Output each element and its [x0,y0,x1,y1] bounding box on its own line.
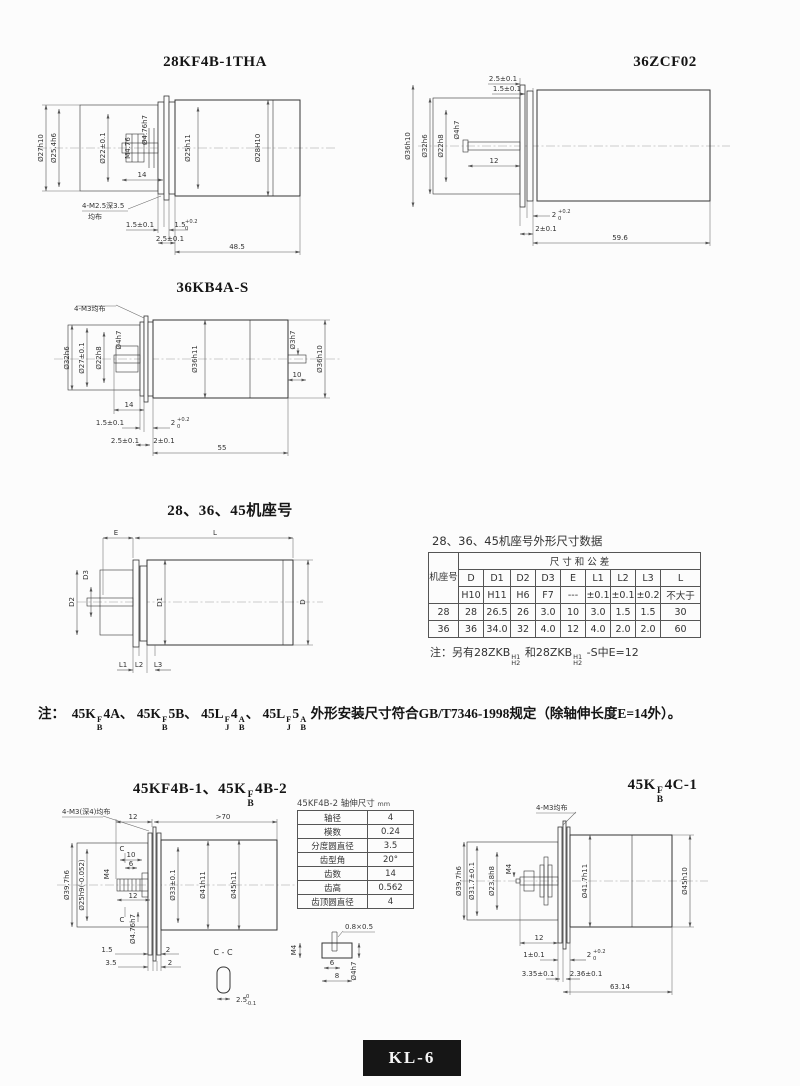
title-text: 45K [628,777,656,793]
gear-cell: 齿数 [298,867,368,881]
screw-note: 4-M2.5深3.5 [82,201,124,210]
note-text: 、 [246,706,260,721]
gear-cell: 齿高 [298,881,368,895]
cell: 26.5 [484,604,511,621]
gear-cell: 齿型角 [298,853,368,867]
gear-cell: 4 [368,811,414,825]
drawing-45KF4B: 45KF4B-1、45KFB4B-2 [45,775,445,1015]
tol-header: --- [561,587,586,604]
dim-flange-label: Ø32h6 [63,346,71,370]
page-number: KL-6 [389,1048,436,1068]
detail-dia-label: Ø4h7 [350,962,358,981]
part-outline [87,560,293,647]
section-cc-label: C - C [213,948,233,957]
col-header: L [661,570,701,587]
dimension-labels: E L D3 D2 D1 D L1 L2 L3 [68,529,307,669]
dim-pcd-label: Ø27±0.1 [78,342,86,373]
col-header: D1 [484,570,511,587]
dim-b1-sub: 0 [558,216,561,222]
cell: 36 [429,621,459,638]
dimension-labels: 4-M3均布 Ø32h6 Ø27±0.1 Ø22h8 Ø4h7 Ø36h11 Ø… [63,304,324,452]
screw-note: 4-M3均布 [536,803,567,812]
dim-t2-label: 1.5 [174,221,185,229]
cell: 4.0 [586,621,611,638]
cell: 1.5 [611,604,636,621]
title-text: 4C-1 [665,777,698,793]
gear-cell: 14 [368,867,414,881]
cell: 60 [661,621,701,638]
cell: 36 [459,621,484,638]
gear-cell: 齿顶圆直径 [298,895,368,909]
cell: 30 [661,604,701,621]
dim-t1-label: 2.5±0.1 [489,76,517,83]
col-header: D3 [536,570,561,587]
detail-8-label: 8 [335,972,339,980]
drawing-28KF4B-1THA-figure: Ø27h10 Ø25.4h6 Ø22±0.1 M4.76 Ø4.76h7 Ø25… [30,80,400,260]
note-stack: FJ [225,715,230,731]
dimension-lines [77,538,313,673]
dim-gear-label: Ø36h11 [191,345,199,373]
dim-E-label: E [114,529,118,537]
dim-pilot-label: Ø23.8h8 [488,866,496,896]
dim-b1-sup: +0.2 [558,209,571,215]
section-mark-c1: C [120,845,125,853]
page-number-badge: KL-6 [363,1040,461,1076]
cell: 3.0 [586,604,611,621]
note-stack: AB [300,715,306,731]
cell: 34.0 [484,621,511,638]
dim-pilot-label: Ø22h8 [95,346,103,369]
part-outline [77,827,277,961]
dim-g2-label: Ø41h11 [199,871,207,899]
part-outline [467,821,672,949]
dim-D3-label: D3 [82,570,90,580]
note-text: 45K [137,706,161,721]
stk-bot: B [97,723,103,731]
dim-gear-label: Ø25h11 [184,134,192,162]
dim-t2-sub: 0 [185,226,188,232]
frame-size-table: 28、36、45机座号外形尺寸数据 机座号 尺 寸 和 公 差 D D1 D2 … [428,533,720,666]
dim-m4-label: M4 [103,868,111,879]
drawing-36ZCF02-figure: 2.5±0.1 1.5±0.1 Ø36h10 Ø32h6 Ø22h8 Ø4h7 … [400,76,790,260]
col-header: L3 [636,570,661,587]
dim-14-label: 14 [125,401,134,409]
dimension-lines [413,78,710,246]
dim-body-label: Ø45h11 [230,871,238,899]
title-text: 45KF4B-1、45K [133,781,247,797]
cell: 1.5 [636,604,661,621]
dim-D2-label: D2 [68,597,76,607]
cell: 10 [561,604,586,621]
dim-b1-label: 2 [552,211,556,219]
tol-header: ±0.2 [636,587,661,604]
drawing-45KB4C-1-figure: 4-M3均布 Ø39.7h6 Ø31.7±0.1 Ø23.8h8 M4 Ø41.… [450,799,795,1015]
note-text: 5B、 [169,706,198,721]
dim-body-label: Ø45h10 [681,867,689,895]
dim-D1-label: D1 [156,597,164,607]
drawing-title: 28、36、45机座号 [65,499,395,520]
gear-table: 轴径4 模数0.24 分度圆直径3.5 齿型角20° 齿数14 齿高0.562 … [297,810,414,909]
drawing-title: 36ZCF02 [540,54,790,71]
table-title: 28、36、45机座号外形尺寸数据 [432,533,720,549]
drawing-36KB4A-S-figure: 4-M3均布 Ø32h6 Ø27±0.1 Ø22h8 Ø4h7 Ø36h11 Ø… [40,304,385,478]
col-header: L1 [586,570,611,587]
detail-slot-label: 0.8×0.5 [345,923,373,931]
note-text: 4 [231,706,238,721]
cell: 32 [511,621,536,638]
col-header: L2 [611,570,636,587]
cell: 28 [429,604,459,621]
dim-t3-label: 2.5±0.1 [111,437,139,445]
cell: 3.0 [536,604,561,621]
drawing-28KF4B-1THA: 28KF4B-1THA [30,50,400,260]
col-header: D [459,570,484,587]
dim-shaft-label: Ø4h7 [453,121,461,140]
dim-b2-label: 2±0.1 [535,225,556,233]
dimension-labels: Ø27h10 Ø25.4h6 Ø22±0.1 M4.76 Ø4.76h7 Ø25… [37,115,262,251]
dim-top12-label: 12 [129,813,138,821]
note-text: 5 [292,706,299,721]
dim-t1-label: 1±0.1 [523,951,544,959]
note-text: 45K [72,706,96,721]
dim-od-label: Ø27h10 [37,134,45,162]
dim-pilot-label: Ø22±0.1 [99,132,107,163]
dim-t3-label: 3.35±0.1 [522,970,555,978]
gear-cell: 20° [368,853,414,867]
dim-12-label: 12 [535,934,544,942]
dim-t2-sub: 0 [177,424,180,430]
dim-12-label: 12 [129,892,138,900]
drawing-frame-sizes: 28、36、45机座号 E L [65,495,395,675]
dim-len-label: 59.6 [612,234,628,242]
dim-b4-label: 2 [168,959,172,967]
note-stack: FB [162,715,168,731]
dim-shaft-label: Ø4h7 [115,331,123,350]
dim-t4-label: 2±0.1 [153,437,174,445]
dim-rshaft-label: Ø3h7 [289,331,297,350]
note-text: 45L [263,706,286,721]
dim-hub-label: Ø25h9(-0.052) [78,859,86,911]
drawing-36KB4A-S: 36KB4A-S [40,278,385,478]
dim-g1-label: Ø33±0.1 [169,869,177,900]
stk-bot: B [162,723,168,731]
cell: 26 [511,604,536,621]
dim-t4-label: 2.36±0.1 [570,970,603,978]
dim-t3-label: 2.5±0.1 [156,235,184,243]
cell: 2.0 [611,621,636,638]
gear-cell: 分度圆直径 [298,839,368,853]
note-stack: H1H2 [573,654,582,666]
gear-cell: 0.562 [368,881,414,895]
dim-body-label: Ø28H10 [254,134,262,163]
note-text: 4A、 [103,706,133,721]
tol-header: H10 [459,587,484,604]
span-header: 尺 寸 和 公 差 [459,553,701,570]
note-text: 外形安装尺寸符合GB/T7346-1998规定（除轴伸长度E=14外）。 [311,706,682,721]
dim-gear-label: Ø41.7h11 [581,864,589,898]
cell: 12 [561,621,586,638]
dim-14-label: 14 [138,171,147,179]
gear-table-title-text: 45KF4B-2 轴伸尺寸 [297,799,375,809]
dim-L-label: L [213,529,217,537]
drawing-frame-figure: E L D3 D2 D1 D L1 L2 L3 [65,525,395,675]
note-stack: H1H2 [511,654,520,666]
screw-note2: 均布 [88,212,102,221]
gear-table-title: 45KF4B-2 轴伸尺寸 mm [297,797,419,809]
dim-len-label: 55 [218,444,227,452]
dim-od-label: Ø36h10 [404,132,412,160]
dim-pilot-label: Ø22h8 [437,134,445,157]
title-text: 4B-2 [255,781,287,797]
screw-note: 4-M3均布 [74,304,105,313]
dim-cc-sup: 0 [246,994,249,1000]
cell: 4.0 [536,621,561,638]
dim-len-label: 48.5 [229,243,245,251]
note-sub: H2 [511,660,520,666]
tol-header: F7 [536,587,561,604]
tol-header: H6 [511,587,536,604]
gear-table-unit: mm [377,800,390,808]
note-text: 45L [201,706,224,721]
col-header: D2 [511,570,536,587]
dim-m4-label: M4 [505,863,513,874]
dim-t2-sup: +0.2 [593,949,606,955]
tol-header: ±0.1 [586,587,611,604]
dim-shaft-label: Ø4.76h7 [141,115,149,145]
gear-cell: 4 [368,895,414,909]
dim-top70-label: >70 [216,813,231,821]
section-mark-c2: C [120,916,125,924]
drawing-36ZCF02: 36ZCF02 2.5±0.1 1 [400,50,790,260]
dimension-table: 机座号 尺 寸 和 公 差 D D1 D2 D3 E L1 L2 L3 L H1… [428,552,701,638]
dim-thread-label: M4.76 [124,137,132,159]
dim-L2-label: L2 [135,661,143,669]
drawing-title: 28KF4B-1THA [30,54,400,71]
drawing-title: 36KB4A-S [40,280,385,297]
dim-od-label: Ø39.7h6 [63,869,71,900]
stk-bot: J [225,723,229,731]
dim-b3-label: 3.5 [105,959,116,967]
dim-t2-sup: +0.2 [177,417,190,423]
screw-note: 4-M3(深4)均布 [62,807,110,816]
dim-flange-label: Ø32h6 [421,134,429,158]
dim-flange-label: Ø25.4h6 [50,132,58,163]
dim-t2-label: 1.5±0.1 [493,85,521,93]
dimension-labels: 4-M3均布 Ø39.7h6 Ø31.7±0.1 Ø23.8h8 M4 Ø41.… [455,803,689,991]
note-text: 注：另有28ZKB [430,646,510,659]
dim-t2-sub: 0 [593,956,596,962]
section-cc [217,967,230,999]
tol-header: H11 [484,587,511,604]
tol-header: ±0.1 [611,587,636,604]
col-header: E [561,570,586,587]
dim-12-label: 12 [490,157,499,165]
shaft-extension-table: 45KF4B-2 轴伸尺寸 mm 轴径4 模数0.24 分度圆直径3.5 齿型角… [297,797,419,909]
detail-6-label: 6 [330,959,335,967]
gear-cell: 3.5 [368,839,414,853]
stk-bot: J [287,723,291,731]
dimension-labels: 2.5±0.1 1.5±0.1 Ø36h10 Ø32h6 Ø22h8 Ø4h7 … [404,76,628,242]
dim-b2-label: 2 [166,946,170,954]
note-stack: FJ [286,715,291,731]
table-row: 28 28 26.5 26 3.0 10 3.0 1.5 1.5 30 [429,604,701,621]
table-row: 36 36 34.0 32 4.0 12 4.0 2.0 2.0 60 [429,621,701,638]
dim-D-label: D [299,599,307,604]
note-prefix: 注： [38,706,65,721]
dim-t2-label: 2 [171,419,175,427]
page-note: 注： 45KFB4A、 45KFB5B、 45LFJ4AB、 45LFJ5AB … [38,702,786,731]
gear-cell: 0.24 [368,825,414,839]
drawing-45KB4C-1: 45KFB4C-1 [450,775,795,1015]
dim-shaft-label: Ø4.76h7 [129,914,137,944]
dim-6-label: 6 [129,860,134,868]
stk-bot: B [239,723,245,731]
dim-od-label: Ø39.7h6 [455,865,463,896]
tol-header: 不大于 [661,587,701,604]
dimension-lines [72,305,330,456]
dim-cc-sub: -0.1 [246,1001,256,1007]
note-sub: H2 [573,660,582,666]
gear-cell: 轴径 [298,811,368,825]
dim-L3-label: L3 [154,661,162,669]
catalog-page: { "colors": {"line": "#333333", "footer_… [0,0,800,1086]
dimension-lines [464,812,694,995]
note-stack: FB [97,715,103,731]
stk-bot: B [300,723,306,731]
corner-header: 机座号 [429,553,459,604]
dim-rlen-label: 10 [293,371,302,379]
dim-body-label: Ø36h10 [316,345,324,373]
dim-10-label: 10 [127,851,136,859]
dim-t2-label: 2 [587,951,591,959]
gear-cell: 模数 [298,825,368,839]
dim-pcd-label: Ø31.7±0.1 [468,862,476,900]
dim-b1-label: 1.5 [101,946,112,954]
dim-t2-sup: +0.2 [185,219,198,225]
cell: 28 [459,604,484,621]
note-text: -S中E=12 [587,646,639,659]
detail-m4-label: M4 [290,944,298,955]
table-note: 注：另有28ZKBH1H2 和28ZKBH1H2 -S中E=12 [430,644,720,666]
note-stack: AB [239,715,245,731]
dim-t1-label: 1.5±0.1 [96,419,124,427]
cell: 2.0 [636,621,661,638]
dim-t1-label: 1.5±0.1 [126,221,154,229]
note-text: 和28ZKB [525,646,572,659]
dim-len-label: 63.14 [610,983,631,991]
dim-L1-label: L1 [119,661,127,669]
